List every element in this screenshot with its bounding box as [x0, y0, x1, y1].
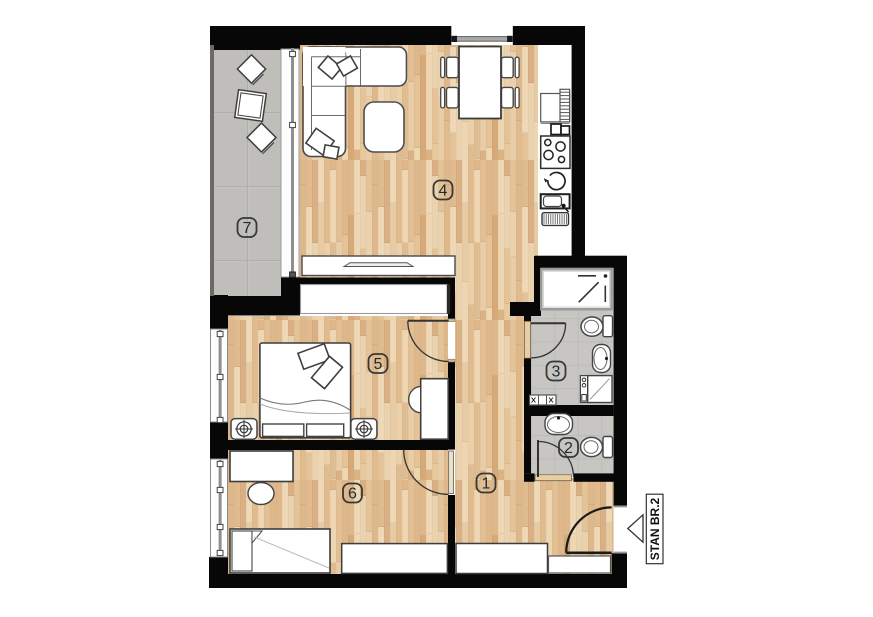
svg-text:6: 6 [348, 486, 357, 503]
svg-text:1: 1 [482, 476, 491, 493]
svg-text:STAN BR.2: STAN BR.2 [648, 497, 662, 560]
svg-text:5: 5 [374, 356, 383, 373]
svg-text:7: 7 [243, 220, 252, 237]
svg-text:4: 4 [439, 183, 448, 200]
svg-text:3: 3 [552, 364, 561, 381]
